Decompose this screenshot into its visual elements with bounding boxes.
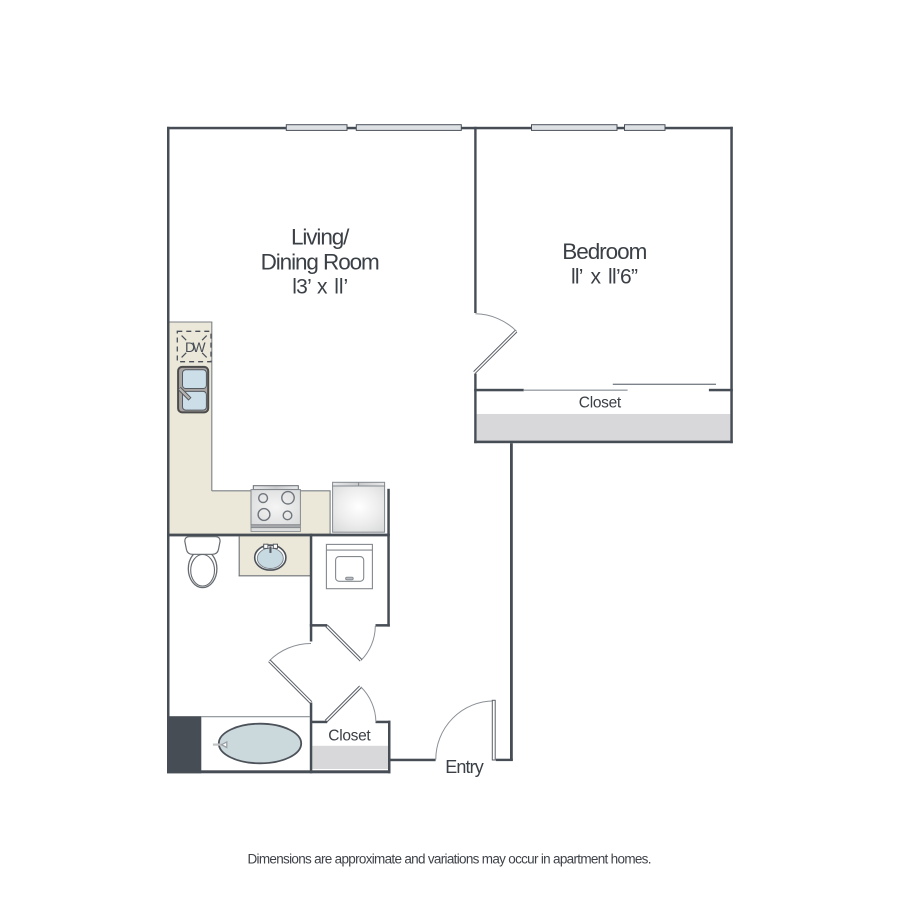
svg-text:ll’: ll’	[334, 276, 348, 299]
svg-text:Dining Room: Dining Room	[261, 249, 380, 274]
svg-text:Closet: Closet	[579, 395, 622, 412]
svg-text:ll’: ll’	[571, 265, 584, 288]
svg-text:Bedroom: Bedroom	[562, 239, 647, 264]
svg-text:Dimensions are approximate and: Dimensions are approximate and variation…	[248, 851, 652, 866]
svg-text:x: x	[317, 276, 328, 299]
svg-text:Living/: Living/	[291, 225, 350, 250]
svg-text:ll’6”: ll’6”	[608, 265, 638, 288]
svg-text:l3’: l3’	[292, 276, 312, 299]
svg-text:Closet: Closet	[328, 728, 371, 745]
svg-text:DW: DW	[185, 339, 206, 355]
svg-text:x: x	[590, 265, 601, 288]
svg-text:Entry: Entry	[445, 757, 484, 777]
